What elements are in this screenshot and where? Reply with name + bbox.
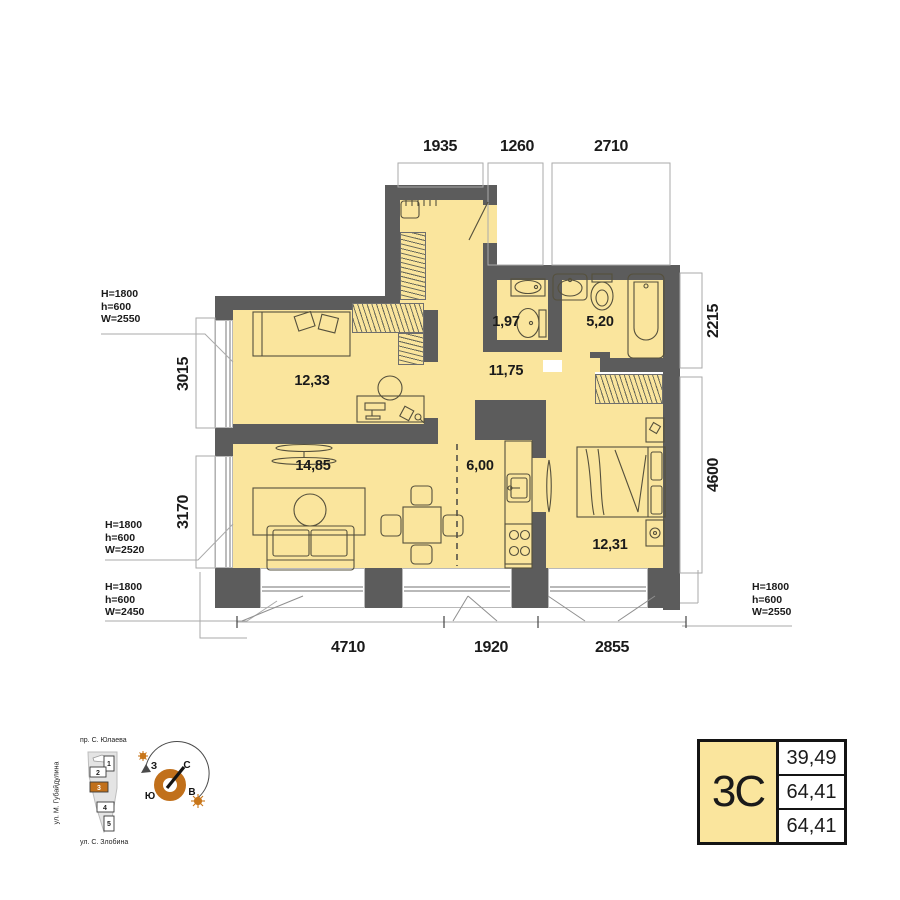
bed1-icon <box>253 312 350 356</box>
bathtub-icon <box>628 274 664 358</box>
pillow-icon <box>651 452 662 480</box>
street-bottom-label: ул. С. Злобина <box>80 839 128 846</box>
nightstand-icon <box>646 520 664 546</box>
compass-west-label: З <box>151 761 157 772</box>
window-spec-right-bottom: H=1800 h=600 W=2550 <box>752 581 791 619</box>
bottom-dimension-line <box>237 596 686 628</box>
building-number: 1 <box>107 761 111 768</box>
arrow-head <box>141 764 151 773</box>
pillow-icon <box>294 312 315 332</box>
apartment-values: 39,49 64,41 64,41 <box>779 742 844 842</box>
extension-lines <box>101 163 792 638</box>
dim-top-1: 1935 <box>423 138 457 156</box>
window-spec-left-bottom: H=1800 h=600 W=2450 <box>105 581 144 619</box>
pillow-icon <box>651 486 662 514</box>
lamp-icon <box>650 528 660 538</box>
chair-icon <box>443 515 463 536</box>
stove-icon <box>505 524 532 564</box>
kitchen-furniture <box>505 441 532 568</box>
site-plan: 1 2 3 4 5 <box>88 752 117 832</box>
entry-door-leaf <box>469 202 488 240</box>
dining-table-icon <box>403 507 441 543</box>
dim-bottom-2: 1920 <box>474 639 508 657</box>
dim-right-1: 2215 <box>705 304 723 338</box>
bedroom1-furniture <box>253 312 424 465</box>
chair-icon <box>411 486 432 505</box>
console-table-icon <box>276 445 332 452</box>
blanket-fold <box>586 449 594 515</box>
building-number: 4 <box>103 805 107 812</box>
street-top-label: пр. С. Юлаева <box>80 737 127 744</box>
chair-icon <box>381 515 401 536</box>
stat-value-1: 39,49 <box>779 742 844 776</box>
dim-right-2: 4600 <box>705 458 723 492</box>
compass-north-label: С <box>183 760 190 771</box>
area-kitchen: 6,00 <box>466 458 493 474</box>
area-bedroom1: 12,33 <box>294 373 329 389</box>
chair-icon <box>411 545 432 564</box>
toilet-icon <box>517 309 539 338</box>
toilet-icon <box>592 274 612 282</box>
street-left-label: ул. М. Губайдулина <box>54 762 61 825</box>
dim-left-2: 3170 <box>175 495 193 529</box>
dim-top-2: 1260 <box>500 138 534 156</box>
area-bedroom2: 12,31 <box>592 537 627 553</box>
building-number: 3 <box>97 785 101 792</box>
sun-icon <box>138 751 148 761</box>
dim-top-3: 2710 <box>594 138 628 156</box>
pillow-icon <box>318 314 338 333</box>
area-bathroom: 5,20 <box>586 314 613 330</box>
building-number: 2 <box>96 770 100 777</box>
compass-south-label: Ю <box>145 791 155 802</box>
compass-east-label: В <box>188 787 195 798</box>
area-hall: 11,75 <box>489 363 524 379</box>
coffee-table-icon <box>294 494 326 526</box>
rug-icon <box>253 488 365 535</box>
dim-bottom-1: 4710 <box>331 639 365 657</box>
apartment-type-badge: 3С <box>700 742 779 842</box>
dim-bottom-3: 2855 <box>595 639 629 657</box>
building-number: 5 <box>107 821 111 828</box>
apartment-stats-box: 3С 39,49 64,41 64,41 <box>697 739 847 845</box>
stat-value-2: 64,41 <box>779 776 844 810</box>
dim-left-1: 3015 <box>175 357 193 391</box>
entry-hall-details <box>401 200 488 240</box>
shoe-cabinet-icon <box>401 201 419 218</box>
area-wc: 1,97 <box>492 314 519 330</box>
stat-value-3: 64,41 <box>779 810 844 842</box>
window-spec-left-top: H=1800 h=600 W=2550 <box>101 288 140 326</box>
bedroom2-door-leaf <box>547 460 552 512</box>
window-spec-left-mid: H=1800 h=600 W=2520 <box>105 519 144 557</box>
floor-plan-page: 1 2 3 4 5 С <box>0 0 900 900</box>
bedroom2-furniture <box>547 418 665 546</box>
window-glazing <box>226 321 646 591</box>
living-furniture <box>253 486 463 570</box>
nightstand-icon <box>646 418 664 442</box>
area-living: 14,85 <box>295 458 330 474</box>
compass: С В Ю З <box>138 741 209 808</box>
